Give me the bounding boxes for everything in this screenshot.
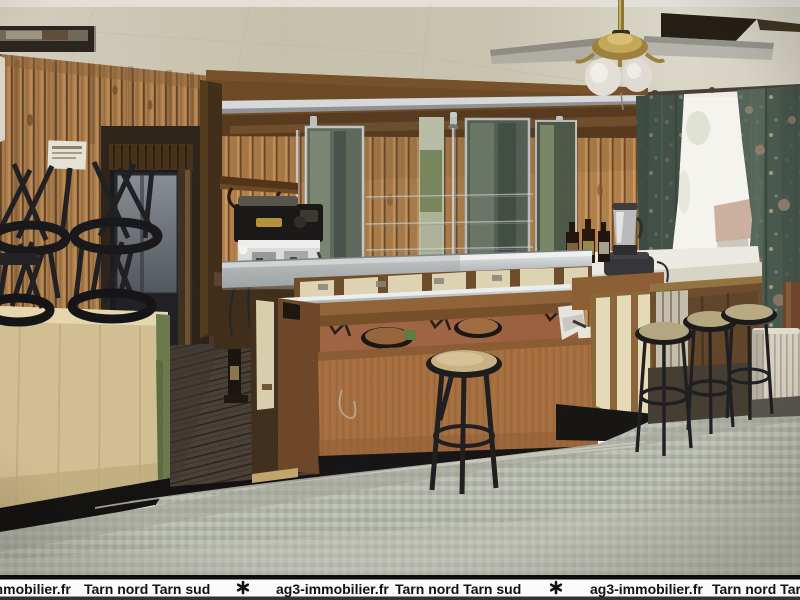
svg-text:Tarn nord Tarn sud: Tarn nord Tarn sud xyxy=(84,581,210,597)
svg-text:ag3-immobilier.fr: ag3-immobilier.fr xyxy=(590,581,703,597)
svg-text:Tarn nord Tarn sud: Tarn nord Tarn sud xyxy=(712,581,800,597)
svg-text:Tarn nord Tarn sud: Tarn nord Tarn sud xyxy=(395,581,521,597)
svg-text:ag3-immobilier.fr: ag3-immobilier.fr xyxy=(0,581,71,597)
svg-text:ag3-immobilier.fr: ag3-immobilier.fr xyxy=(276,581,389,597)
